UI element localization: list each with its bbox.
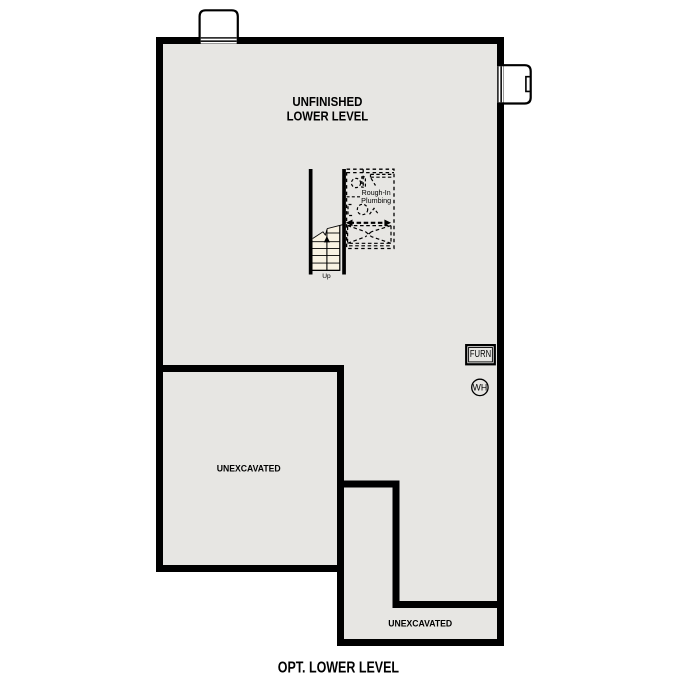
svg-text:OPT. LOWER LEVEL: OPT. LOWER LEVEL: [278, 660, 399, 677]
svg-text:WH: WH: [473, 383, 488, 393]
svg-text:Up: Up: [322, 273, 331, 280]
svg-text:UNEXCAVATED: UNEXCAVATED: [388, 619, 452, 630]
svg-text:FURN: FURN: [470, 349, 491, 360]
svg-text:LOWER LEVEL: LOWER LEVEL: [287, 108, 369, 123]
svg-text:Plumbing: Plumbing: [361, 198, 391, 205]
svg-text:Rough-In: Rough-In: [362, 190, 391, 197]
svg-text:UNEXCAVATED: UNEXCAVATED: [217, 463, 281, 474]
svg-text:UNFINISHED: UNFINISHED: [292, 94, 362, 109]
